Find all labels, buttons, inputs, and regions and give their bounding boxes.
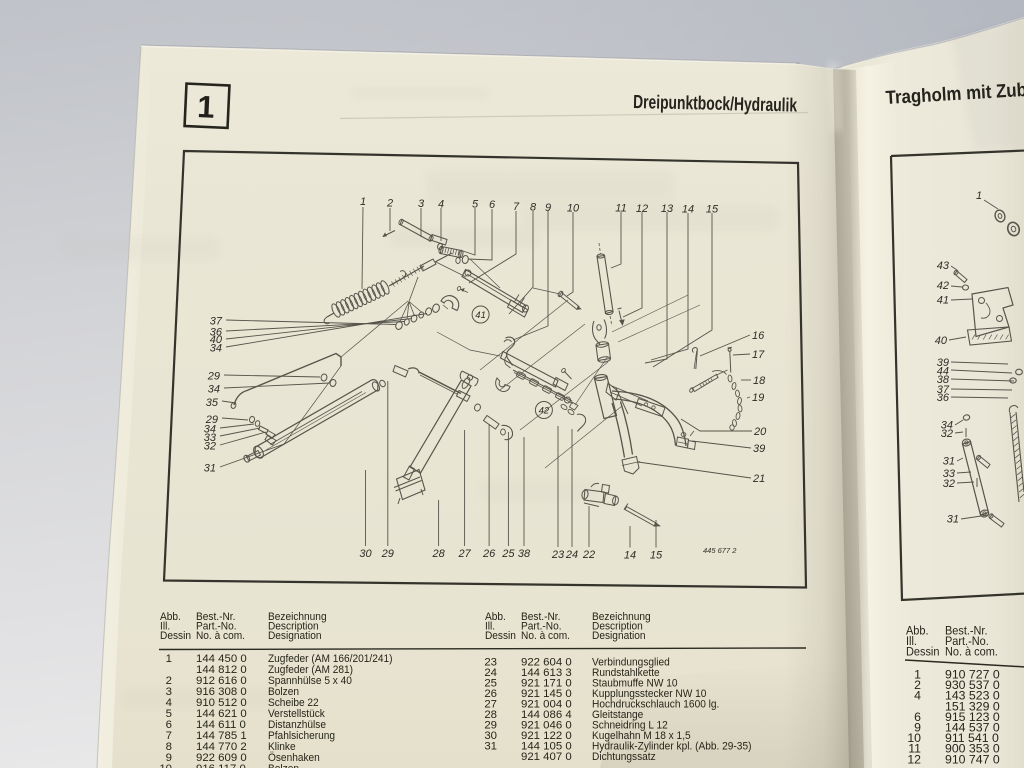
- svg-text:1: 1: [166, 653, 172, 665]
- svg-text:32: 32: [204, 441, 216, 453]
- svg-text:Designation: Designation: [592, 629, 646, 642]
- svg-text:31: 31: [484, 741, 497, 753]
- svg-text:38: 38: [518, 548, 531, 560]
- svg-text:39: 39: [753, 443, 765, 455]
- svg-text:Dreipunktbock/Hydraulik: Dreipunktbock/Hydraulik: [633, 92, 798, 117]
- svg-text:Bolzen: Bolzen: [268, 762, 299, 768]
- svg-text:41: 41: [937, 295, 949, 307]
- svg-text:10: 10: [159, 763, 172, 768]
- svg-text:22: 22: [582, 549, 595, 561]
- svg-text:20: 20: [753, 426, 767, 438]
- svg-text:910 747 0: 910 747 0: [945, 752, 1000, 766]
- svg-text:34: 34: [208, 384, 220, 396]
- svg-text:26: 26: [482, 548, 496, 560]
- svg-text:No. à com.: No. à com.: [521, 629, 570, 642]
- svg-text:40: 40: [935, 335, 948, 347]
- svg-text:31: 31: [943, 456, 955, 468]
- svg-text:1: 1: [360, 196, 366, 208]
- svg-text:1: 1: [197, 89, 216, 125]
- svg-text:34: 34: [210, 343, 222, 355]
- svg-text:21: 21: [752, 473, 765, 485]
- svg-text:32: 32: [943, 478, 955, 490]
- svg-text:No. à com.: No. à com.: [945, 645, 998, 659]
- svg-text:Designation: Designation: [268, 629, 322, 642]
- svg-text:17: 17: [752, 349, 765, 361]
- svg-text:921 407 0: 921 407 0: [521, 751, 572, 763]
- svg-text:31: 31: [947, 514, 959, 526]
- svg-text:2: 2: [386, 198, 393, 210]
- svg-text:18: 18: [753, 375, 766, 387]
- svg-text:35: 35: [206, 397, 219, 409]
- svg-text:4: 4: [914, 689, 921, 703]
- svg-text:19: 19: [752, 392, 764, 404]
- svg-text:29: 29: [381, 548, 394, 560]
- svg-text:Dessin: Dessin: [160, 629, 191, 642]
- svg-text:16: 16: [752, 330, 765, 342]
- svg-text:28: 28: [431, 548, 445, 560]
- svg-text:445 677 2: 445 677 2: [703, 546, 737, 555]
- svg-text:25: 25: [501, 548, 515, 560]
- svg-text:1: 1: [976, 190, 982, 202]
- svg-text:36: 36: [937, 392, 950, 404]
- svg-text:15: 15: [650, 550, 663, 562]
- svg-text:23: 23: [551, 549, 565, 561]
- svg-text:24: 24: [565, 549, 578, 561]
- svg-text:Dichtungssatz: Dichtungssatz: [592, 750, 656, 763]
- svg-text:12: 12: [907, 752, 921, 766]
- svg-text:43: 43: [937, 260, 950, 272]
- svg-text:30: 30: [359, 548, 372, 560]
- svg-text:Dessin: Dessin: [906, 645, 939, 659]
- svg-text:916 117 0: 916 117 0: [196, 763, 246, 768]
- svg-text:27: 27: [457, 548, 471, 560]
- svg-text:Dessin: Dessin: [485, 629, 516, 642]
- svg-text:No. à com.: No. à com.: [196, 629, 245, 642]
- svg-text:31: 31: [204, 463, 216, 475]
- svg-text:29: 29: [207, 371, 220, 383]
- svg-text:41: 41: [475, 310, 486, 321]
- svg-text:42: 42: [937, 280, 949, 292]
- svg-text:14: 14: [624, 550, 636, 562]
- svg-text:32: 32: [941, 428, 953, 440]
